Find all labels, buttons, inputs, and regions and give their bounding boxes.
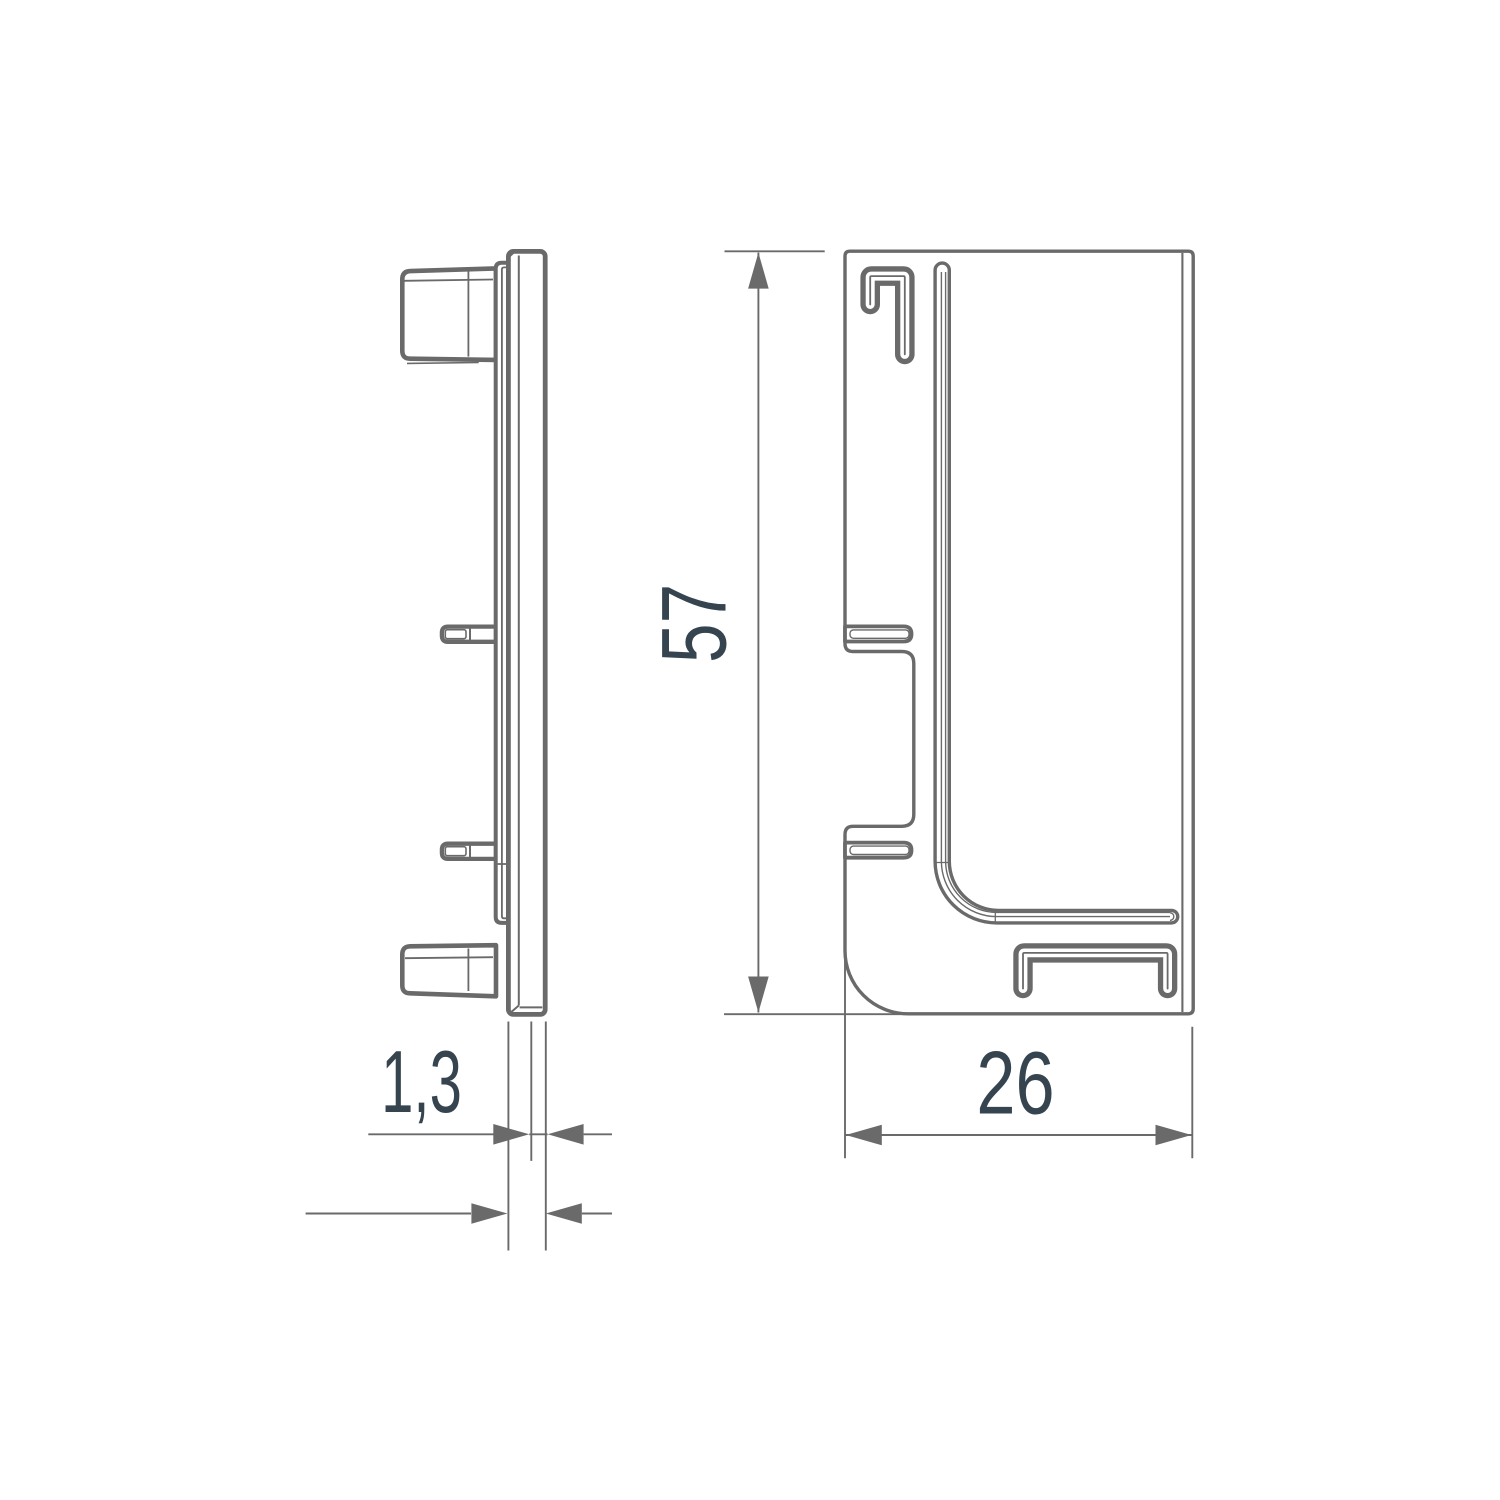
svg-text:1,3: 1,3 bbox=[381, 1033, 462, 1131]
svg-text:26: 26 bbox=[976, 1032, 1054, 1132]
svg-text:57: 57 bbox=[643, 584, 746, 663]
